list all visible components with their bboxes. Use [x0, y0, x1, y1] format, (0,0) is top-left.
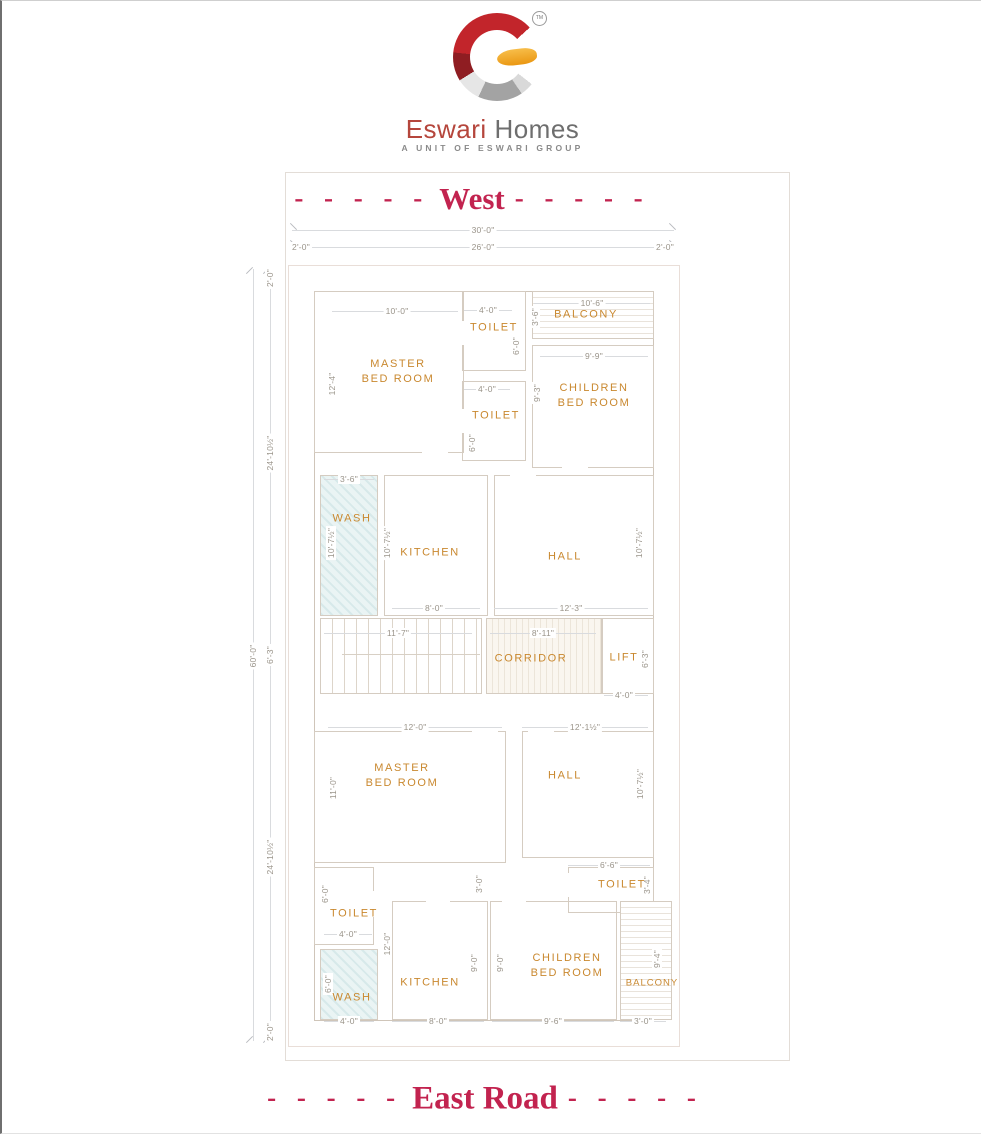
room-label-master-bedroom-upper: MASTERBED ROOM — [362, 357, 435, 387]
dimension-label: 4'-0" — [338, 1016, 360, 1026]
dimension-label: 11'-7" — [385, 628, 411, 638]
door-opening — [460, 409, 465, 433]
dimension-label: 2'-0" — [265, 1021, 275, 1043]
room-label-kitchen-lower: KITCHEN — [400, 976, 459, 991]
room-label-wash-lower: WASH — [333, 991, 372, 1006]
dimension-label: 3'-0" — [474, 873, 484, 895]
door-opening — [460, 321, 465, 345]
room-label-kitchen-upper: KITCHEN — [400, 546, 459, 561]
door-opening — [502, 899, 526, 904]
room-label-balcony-lower: BALCONY — [626, 976, 678, 991]
dimension-label: 3'-6" — [530, 306, 540, 328]
dimension-label: 4'-0" — [477, 305, 499, 315]
door-opening — [566, 873, 571, 897]
dimension-label: 8'-0" — [427, 1016, 449, 1026]
dimension-label: 6'-3" — [640, 648, 650, 670]
brand-tagline: A UNIT OF ESWARI GROUP — [2, 143, 981, 153]
dimension-label: 9'-0" — [495, 952, 505, 974]
room-label-hall-lower: HALL — [548, 769, 582, 784]
dimension-label: 24'-10½" — [265, 837, 275, 876]
dimension-label: 8'-0" — [423, 603, 445, 613]
room-label-toilet-lower-right: TOILET — [598, 878, 646, 893]
room-label-master-bedroom-lower: MASTERBED ROOM — [366, 761, 439, 791]
dimension-label: 12'-0" — [382, 931, 392, 958]
room-label-wash-upper: WASH — [333, 512, 372, 527]
dimension-label: 6'-0" — [511, 335, 521, 357]
dimension-label: 9'-3" — [532, 382, 542, 404]
eswari-logo-icon: TM — [449, 11, 545, 107]
dimension-label: 4'-0" — [613, 690, 635, 700]
title-dashes: - - - - - — [294, 183, 429, 213]
dimension-label: 2'-0" — [290, 242, 312, 252]
room-label-children-bedroom-lower: CHILDRENBED ROOM — [531, 951, 604, 981]
room-balcony-lower — [620, 901, 672, 1020]
plan-title-east-road: - - - - -East Road- - - - - — [267, 1081, 703, 1118]
dimension-label: 12'-0" — [402, 722, 429, 732]
door-opening — [422, 449, 448, 454]
room-master-bedroom-lower — [314, 731, 506, 863]
dimension-label: 2'-0" — [654, 242, 676, 252]
room-label-corridor: CORRIDOR — [495, 652, 568, 667]
door-opening — [528, 729, 554, 734]
dimension-label: 24'-10½" — [265, 433, 275, 472]
dimension-label: 9'-9" — [583, 351, 605, 361]
dimension-label: 10'-0" — [384, 306, 411, 316]
dimension-label: 9'-6" — [542, 1016, 564, 1026]
dimension-label: 12'-4" — [327, 371, 337, 398]
room-label-toilet-lower-left: TOILET — [330, 907, 378, 922]
dimension-label: 9'-0" — [469, 952, 479, 974]
brand-name: Eswari Homes — [2, 114, 981, 145]
dimension-label: 10'-7½" — [634, 526, 644, 560]
door-opening — [562, 464, 588, 469]
room-label-balcony-upper: BALCONY — [554, 308, 618, 323]
dimension-label: 10'-7½" — [382, 526, 392, 560]
stair-landing-line — [342, 654, 480, 655]
dimension-label: 26'-0" — [470, 242, 497, 252]
dimension-label: 10'-7½" — [326, 526, 336, 560]
dimension-label: 6'-0" — [467, 432, 477, 454]
brand-name-primary: Eswari — [406, 114, 487, 144]
dimension-label: 12'-1½" — [568, 722, 602, 732]
dimension-label: 8'-11" — [530, 628, 556, 638]
dimension-label: 60'-0" — [248, 643, 258, 670]
room-label-toilet-upper-1: TOILET — [470, 321, 518, 336]
trademark-badge: TM — [532, 11, 547, 26]
brand-name-secondary: Homes — [494, 114, 579, 144]
dimension-label: 3'-6" — [338, 474, 360, 484]
page: TM Eswari Homes A UNIT OF ESWARI GROUP -… — [0, 0, 981, 1134]
dimension-label: 6'-6" — [598, 860, 620, 870]
dimension-label: 10'-7½" — [635, 767, 645, 801]
room-label-children-bedroom-upper: CHILDRENBED ROOM — [558, 381, 631, 411]
dimension-label: 3'-0" — [632, 1016, 654, 1026]
dimension-label: 2'-0" — [265, 267, 275, 289]
dimension-label: 12'-3" — [558, 603, 585, 613]
dimension-label: 30'-0" — [470, 225, 497, 235]
dimension-label: 9'-4" — [652, 948, 662, 970]
dimension-label: 6'-3" — [265, 644, 275, 666]
dimension-label: 4'-0" — [476, 384, 498, 394]
room-label-hall-upper: HALL — [548, 550, 582, 565]
title-dashes: - - - - - — [267, 1083, 402, 1113]
room-label-lift: LIFT — [609, 651, 638, 666]
door-opening — [510, 473, 536, 478]
room-hall-upper — [494, 475, 654, 616]
dimension-label: 4'-0" — [337, 929, 359, 939]
dimension-label: 6'-0" — [320, 883, 330, 905]
title-dashes: - - - - - — [515, 183, 650, 213]
dimension-label: 6'-0" — [323, 973, 333, 995]
door-opening — [426, 899, 450, 904]
title-dashes: - - - - - — [568, 1083, 703, 1113]
room-label-toilet-upper-2: TOILET — [472, 409, 520, 424]
door-opening — [472, 729, 498, 734]
plan-title-west: - - - - -West- - - - - — [294, 181, 649, 217]
dimension-label: 11'-0" — [328, 775, 338, 801]
dimension-label: 10'-6" — [579, 298, 606, 308]
